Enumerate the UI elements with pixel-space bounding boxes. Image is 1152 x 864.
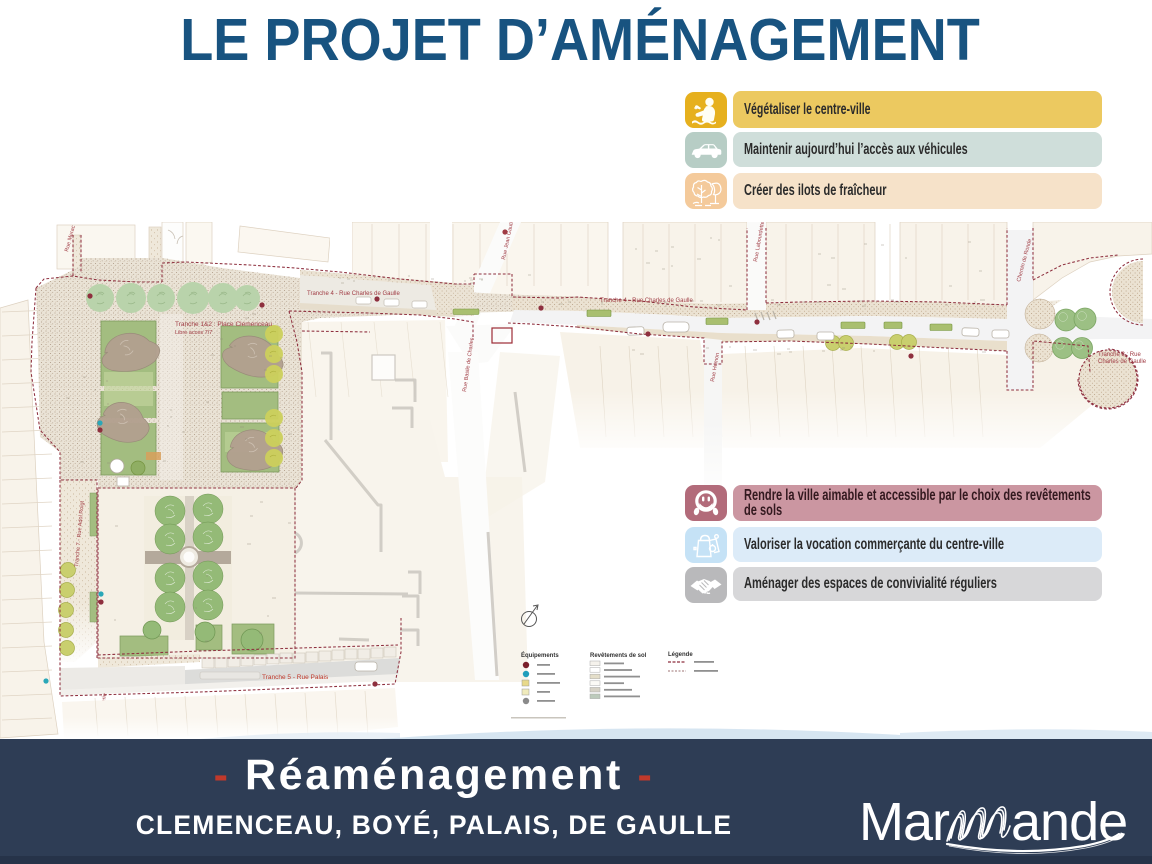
svg-text:Tranche 4 - Rue Charles de Gau: Tranche 4 - Rue Charles de Gaulle [307,291,400,297]
svg-text:Libre acces 7/7: Libre acces 7/7 [175,330,212,336]
svg-text:Mar: Mar [859,794,950,852]
svg-text:Tranche 4 - Rue Charles de Gau: Tranche 4 - Rue Charles de Gaulle [600,298,693,304]
svg-text:Tranche 3 : Rue: Tranche 3 : Rue [1098,352,1141,358]
svg-text:Tranche 1&2 : Place Clemenceau: Tranche 1&2 : Place Clemenceau [175,321,272,328]
svg-text:ande: ande [1011,794,1127,852]
svg-text:Revêtements de sol: Revêtements de sol [590,653,647,659]
svg-text:Légende: Légende [668,652,693,658]
svg-text:Tranche 5 - Rue Palais: Tranche 5 - Rue Palais [262,674,329,681]
svg-text:Charles de Gaulle: Charles de Gaulle [1098,359,1147,365]
svg-text:Équipements: Équipements [521,651,559,659]
